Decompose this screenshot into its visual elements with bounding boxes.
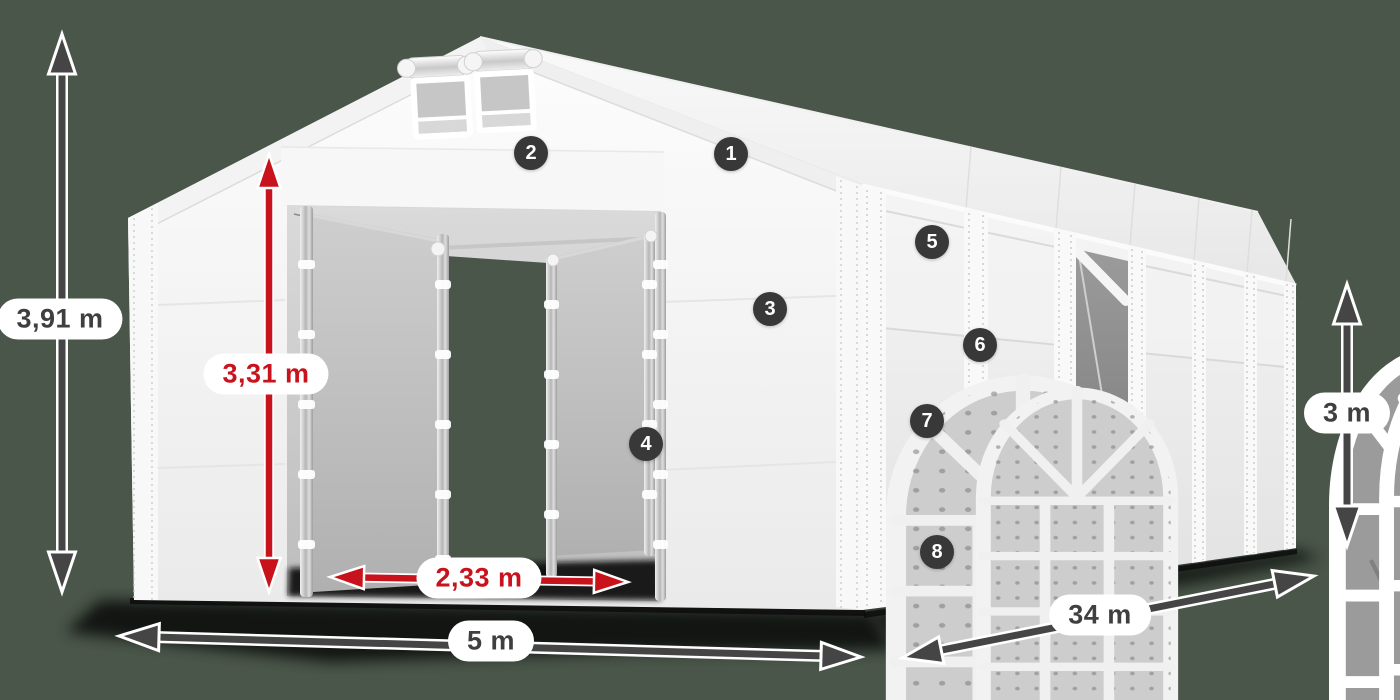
feature-marker-3: 3 — [753, 292, 787, 326]
tent-illustration — [0, 0, 1400, 700]
feature-marker-2: 2 — [514, 136, 548, 170]
dimension-label-entrance-height: 3,31 m — [203, 354, 328, 395]
feature-marker-5: 5 — [915, 225, 949, 259]
entrance-lintel — [281, 147, 664, 212]
feature-marker-7: 7 — [910, 404, 944, 438]
feature-marker-6: 6 — [963, 328, 997, 362]
feature-marker-8: 8 — [920, 535, 954, 569]
dimension-label-front-width: 5 m — [448, 621, 534, 662]
tent-product-diagram: 3,91 m 3,31 m 2,33 m 5 m 34 m 3 m 1 2 3 … — [0, 0, 1400, 700]
feature-marker-4: 4 — [629, 427, 663, 461]
dimension-label-total-height: 3,91 m — [0, 299, 123, 340]
dimension-label-side-length: 34 m — [1049, 595, 1151, 636]
feature-marker-1: 1 — [714, 137, 748, 171]
dimension-label-entrance-width: 2,33 m — [416, 558, 541, 599]
dimension-label-wall-height: 3 m — [1304, 393, 1390, 434]
